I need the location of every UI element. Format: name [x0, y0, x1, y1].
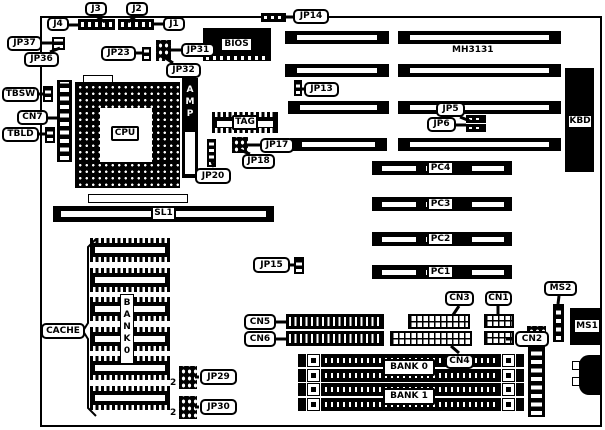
cache-chip: [90, 386, 170, 410]
isa-slot: [285, 64, 389, 77]
simm-end: [516, 398, 524, 411]
label-bios: BIOS: [220, 37, 253, 52]
simm-end: [516, 369, 524, 382]
label-cache: CACHE: [41, 323, 85, 339]
tbld-jumper: [45, 127, 55, 143]
label-jp29: JP29: [200, 369, 237, 385]
label-tbsw: TBSW: [2, 87, 39, 102]
simm-clip: [502, 383, 515, 396]
jp31-jumper-block: [156, 40, 171, 61]
label-pc3: PC3: [427, 197, 454, 211]
isa-slot: [398, 64, 561, 77]
label-jp32: JP32: [166, 63, 201, 78]
simm-clip: [307, 369, 320, 382]
jp17-jumper-block: [232, 137, 248, 153]
cn5-connector: [286, 314, 384, 329]
simm-end: [298, 383, 306, 396]
isa-slot: [398, 31, 561, 44]
cache-chip: [90, 238, 170, 262]
label-j4: J4: [47, 17, 69, 31]
label-cn1: CN1: [485, 291, 512, 306]
amp-regulator-label: AMP: [184, 84, 196, 120]
label-jp17: JP17: [260, 138, 294, 153]
jp23-jumper: [142, 47, 151, 61]
label-cn4: CN4: [445, 354, 474, 369]
label-bank1: BANK 1: [383, 388, 435, 405]
simm-clip: [307, 383, 320, 396]
simm-clip: [307, 398, 320, 411]
label-jp6: JP6: [427, 117, 456, 132]
label-j2: J2: [126, 2, 148, 16]
label-bank0: BANK 0: [383, 359, 435, 376]
power-connector: [528, 336, 545, 417]
amp-regulator-window: [185, 132, 195, 174]
jp30-pin-marker: 2: [170, 409, 176, 418]
tbsw-jumper: [43, 86, 53, 102]
label-jp20: JP20: [195, 168, 231, 184]
label-pc1: PC1: [427, 265, 454, 279]
label-chipset: MH3131: [452, 46, 494, 55]
label-jp31: JP31: [181, 43, 215, 57]
label-cn7: CN7: [17, 110, 48, 125]
label-jp37: JP37: [7, 36, 42, 51]
isa-slot: [288, 101, 389, 114]
label-jp23: JP23: [101, 46, 136, 61]
label-cn5: CN5: [244, 314, 276, 330]
label-cn2: CN2: [515, 331, 549, 347]
rear-port-pin: [572, 361, 580, 370]
simm-end: [516, 354, 524, 367]
label-ms1: MS1: [573, 318, 601, 334]
label-sl1: SL1: [151, 206, 176, 221]
jp14-header: [261, 13, 286, 22]
cpu-socket-lever: [88, 194, 188, 203]
isa-slot: [290, 138, 387, 151]
label-cpu: CPU: [111, 126, 139, 141]
cn4-connector: [390, 331, 472, 346]
jp5-jumper: [466, 115, 486, 123]
jp6-jumper: [466, 124, 486, 132]
isa-slot: [285, 31, 389, 44]
simm-end: [298, 354, 306, 367]
label-tag: TAG: [232, 115, 258, 130]
label-jp18: JP18: [242, 154, 275, 169]
cache-chip: [90, 268, 170, 292]
label-ms2: MS2: [544, 281, 577, 296]
jp29-pin-marker: 2: [170, 379, 176, 388]
label-pc4: PC4: [427, 161, 454, 175]
label-tbld: TBLD: [2, 127, 39, 142]
label-j3: J3: [85, 2, 107, 16]
label-cn3: CN3: [445, 291, 474, 306]
simm-clip: [502, 354, 515, 367]
jp29-jumper-block: [179, 366, 197, 389]
cn2-connector: [484, 331, 514, 345]
label-cn6: CN6: [244, 331, 276, 347]
simm-end: [298, 398, 306, 411]
jp37-jumper: [52, 37, 65, 50]
label-j1: J1: [163, 17, 185, 31]
rear-port: [579, 355, 602, 395]
simm-end: [516, 383, 524, 396]
label-kbd: KBD: [567, 114, 593, 129]
simm-clip: [307, 354, 320, 367]
label-pc2: PC2: [427, 232, 454, 246]
simm-clip: [502, 369, 515, 382]
ms2-header: [553, 304, 564, 342]
jp15-jumper: [294, 257, 304, 274]
connector-j4-j3-strip: [78, 19, 115, 30]
label-jp36: JP36: [24, 52, 59, 67]
label-jp15: JP15: [253, 257, 290, 273]
motherboard-layout-diagram: AMP BANK0: [0, 0, 605, 430]
label-jp13: JP13: [304, 82, 339, 97]
label-jp14: JP14: [293, 9, 329, 24]
rear-port-pin: [572, 377, 580, 386]
cn7-header: [57, 80, 72, 162]
simm-end: [298, 369, 306, 382]
connector-j2-j1-strip: [118, 19, 154, 30]
jp30-jumper-block: [179, 396, 197, 419]
cn1-connector: [484, 314, 514, 328]
isa-slot: [398, 138, 561, 151]
label-jp30: JP30: [200, 399, 237, 415]
label-jp5: JP5: [436, 102, 465, 117]
cn3-connector: [408, 314, 470, 329]
cn6-connector: [286, 331, 384, 346]
simm-clip: [502, 398, 515, 411]
jp20-jumper: [207, 139, 216, 167]
jp13-jumper: [294, 80, 302, 96]
isa-slot: [398, 101, 561, 114]
cache-bank-vertical-label: BANK0: [120, 294, 134, 364]
